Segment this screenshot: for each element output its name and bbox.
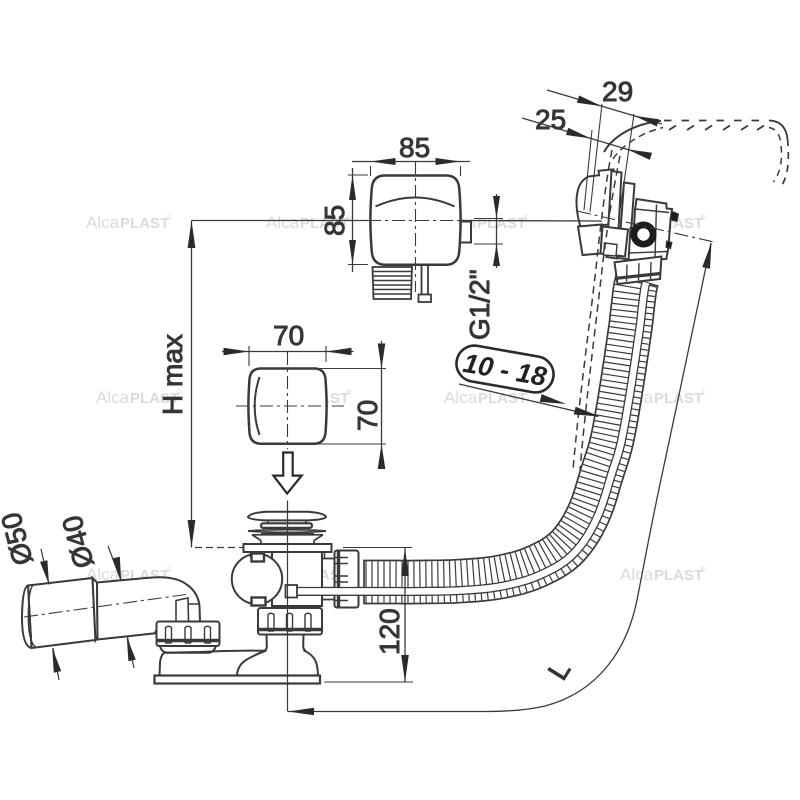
svg-text:120: 120 <box>374 608 405 655</box>
svg-text:H max: H max <box>157 334 188 415</box>
svg-text:85: 85 <box>319 205 350 236</box>
svg-text:Ø40: Ø40 <box>56 512 100 571</box>
svg-text:29: 29 <box>602 76 633 107</box>
svg-text:70: 70 <box>352 400 383 431</box>
svg-text:85: 85 <box>399 132 430 163</box>
svg-text:Ø50: Ø50 <box>0 509 39 568</box>
svg-text:L: L <box>542 656 577 686</box>
svg-text:70: 70 <box>273 320 304 351</box>
svg-text:G1/2": G1/2" <box>464 269 495 340</box>
